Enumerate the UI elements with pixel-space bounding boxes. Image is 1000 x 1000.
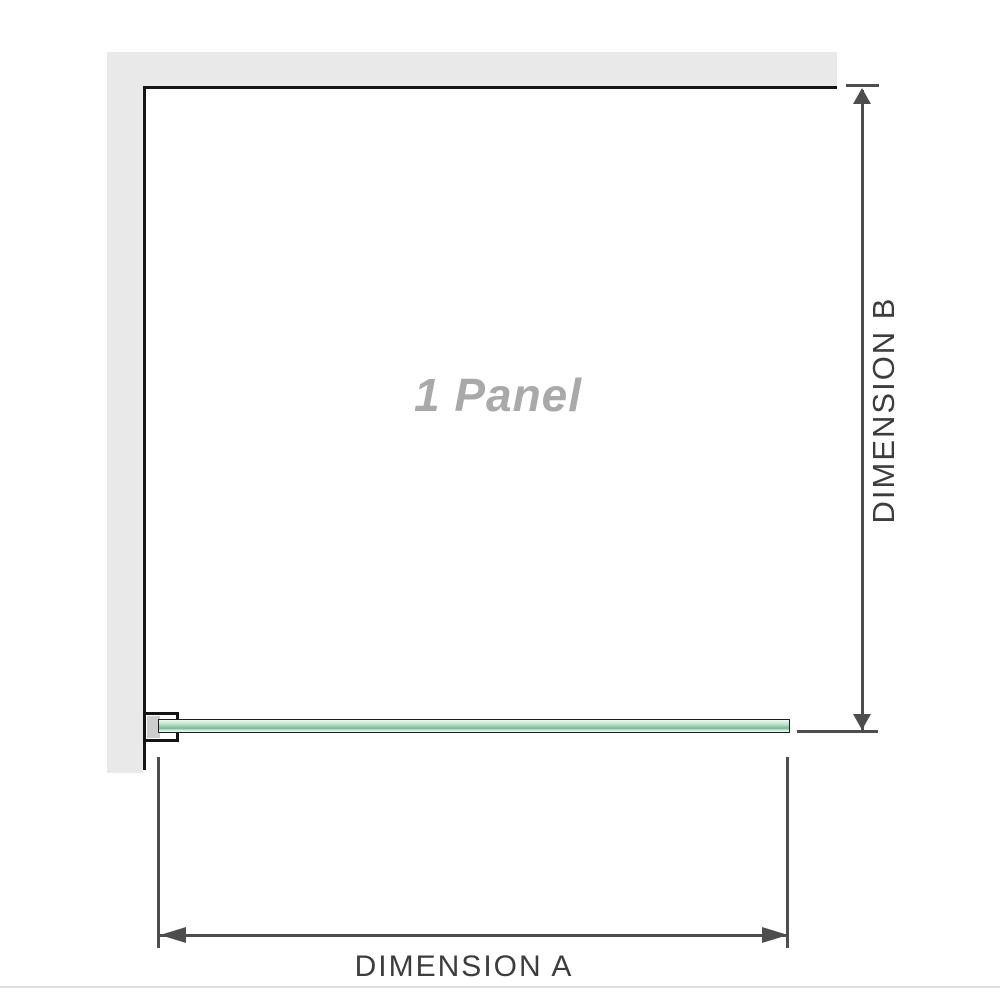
arrow-right-icon xyxy=(762,927,788,943)
arrow-down-icon xyxy=(853,714,871,730)
panel-label: 1 Panel xyxy=(338,368,658,422)
wall-left xyxy=(107,52,143,773)
dimension-a-line xyxy=(160,934,788,937)
dimension-b-tick-bottom xyxy=(797,730,878,733)
dimension-a-extension-left xyxy=(157,757,160,948)
panel-outline xyxy=(143,86,837,770)
wall-top xyxy=(107,52,837,86)
dimension-b-label: DIMENSION B xyxy=(866,210,902,610)
footer-rule xyxy=(0,986,1000,988)
dimension-b-tick-top xyxy=(846,84,879,87)
arrow-left-icon xyxy=(160,927,186,943)
diagram-canvas: 1 Panel DIMENSION B DIMENSION A xyxy=(0,0,1000,1000)
glass-panel xyxy=(158,719,790,733)
arrow-up-icon xyxy=(853,88,871,104)
dimension-a-label: DIMENSION A xyxy=(214,950,714,984)
dimension-a-extension-right xyxy=(786,757,789,948)
dimension-b-line xyxy=(861,90,864,730)
